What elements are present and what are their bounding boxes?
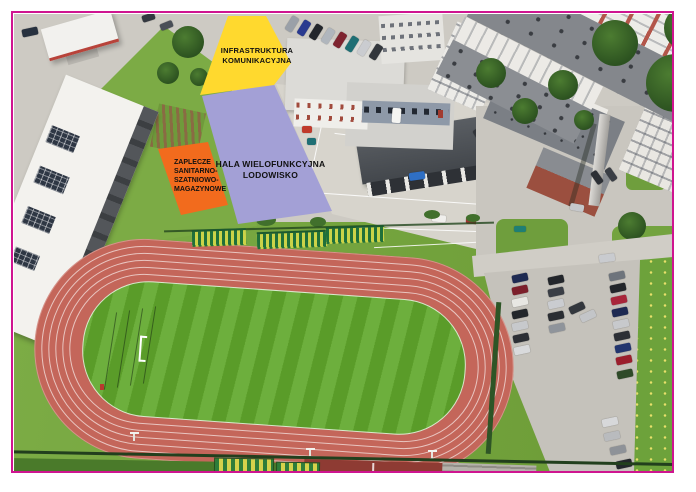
photo-frame-border [11,11,674,473]
annotated-aerial-plan: INFRASTRUKTURA KOMUNIKACYJNA HALA WIELOF… [0,0,696,492]
